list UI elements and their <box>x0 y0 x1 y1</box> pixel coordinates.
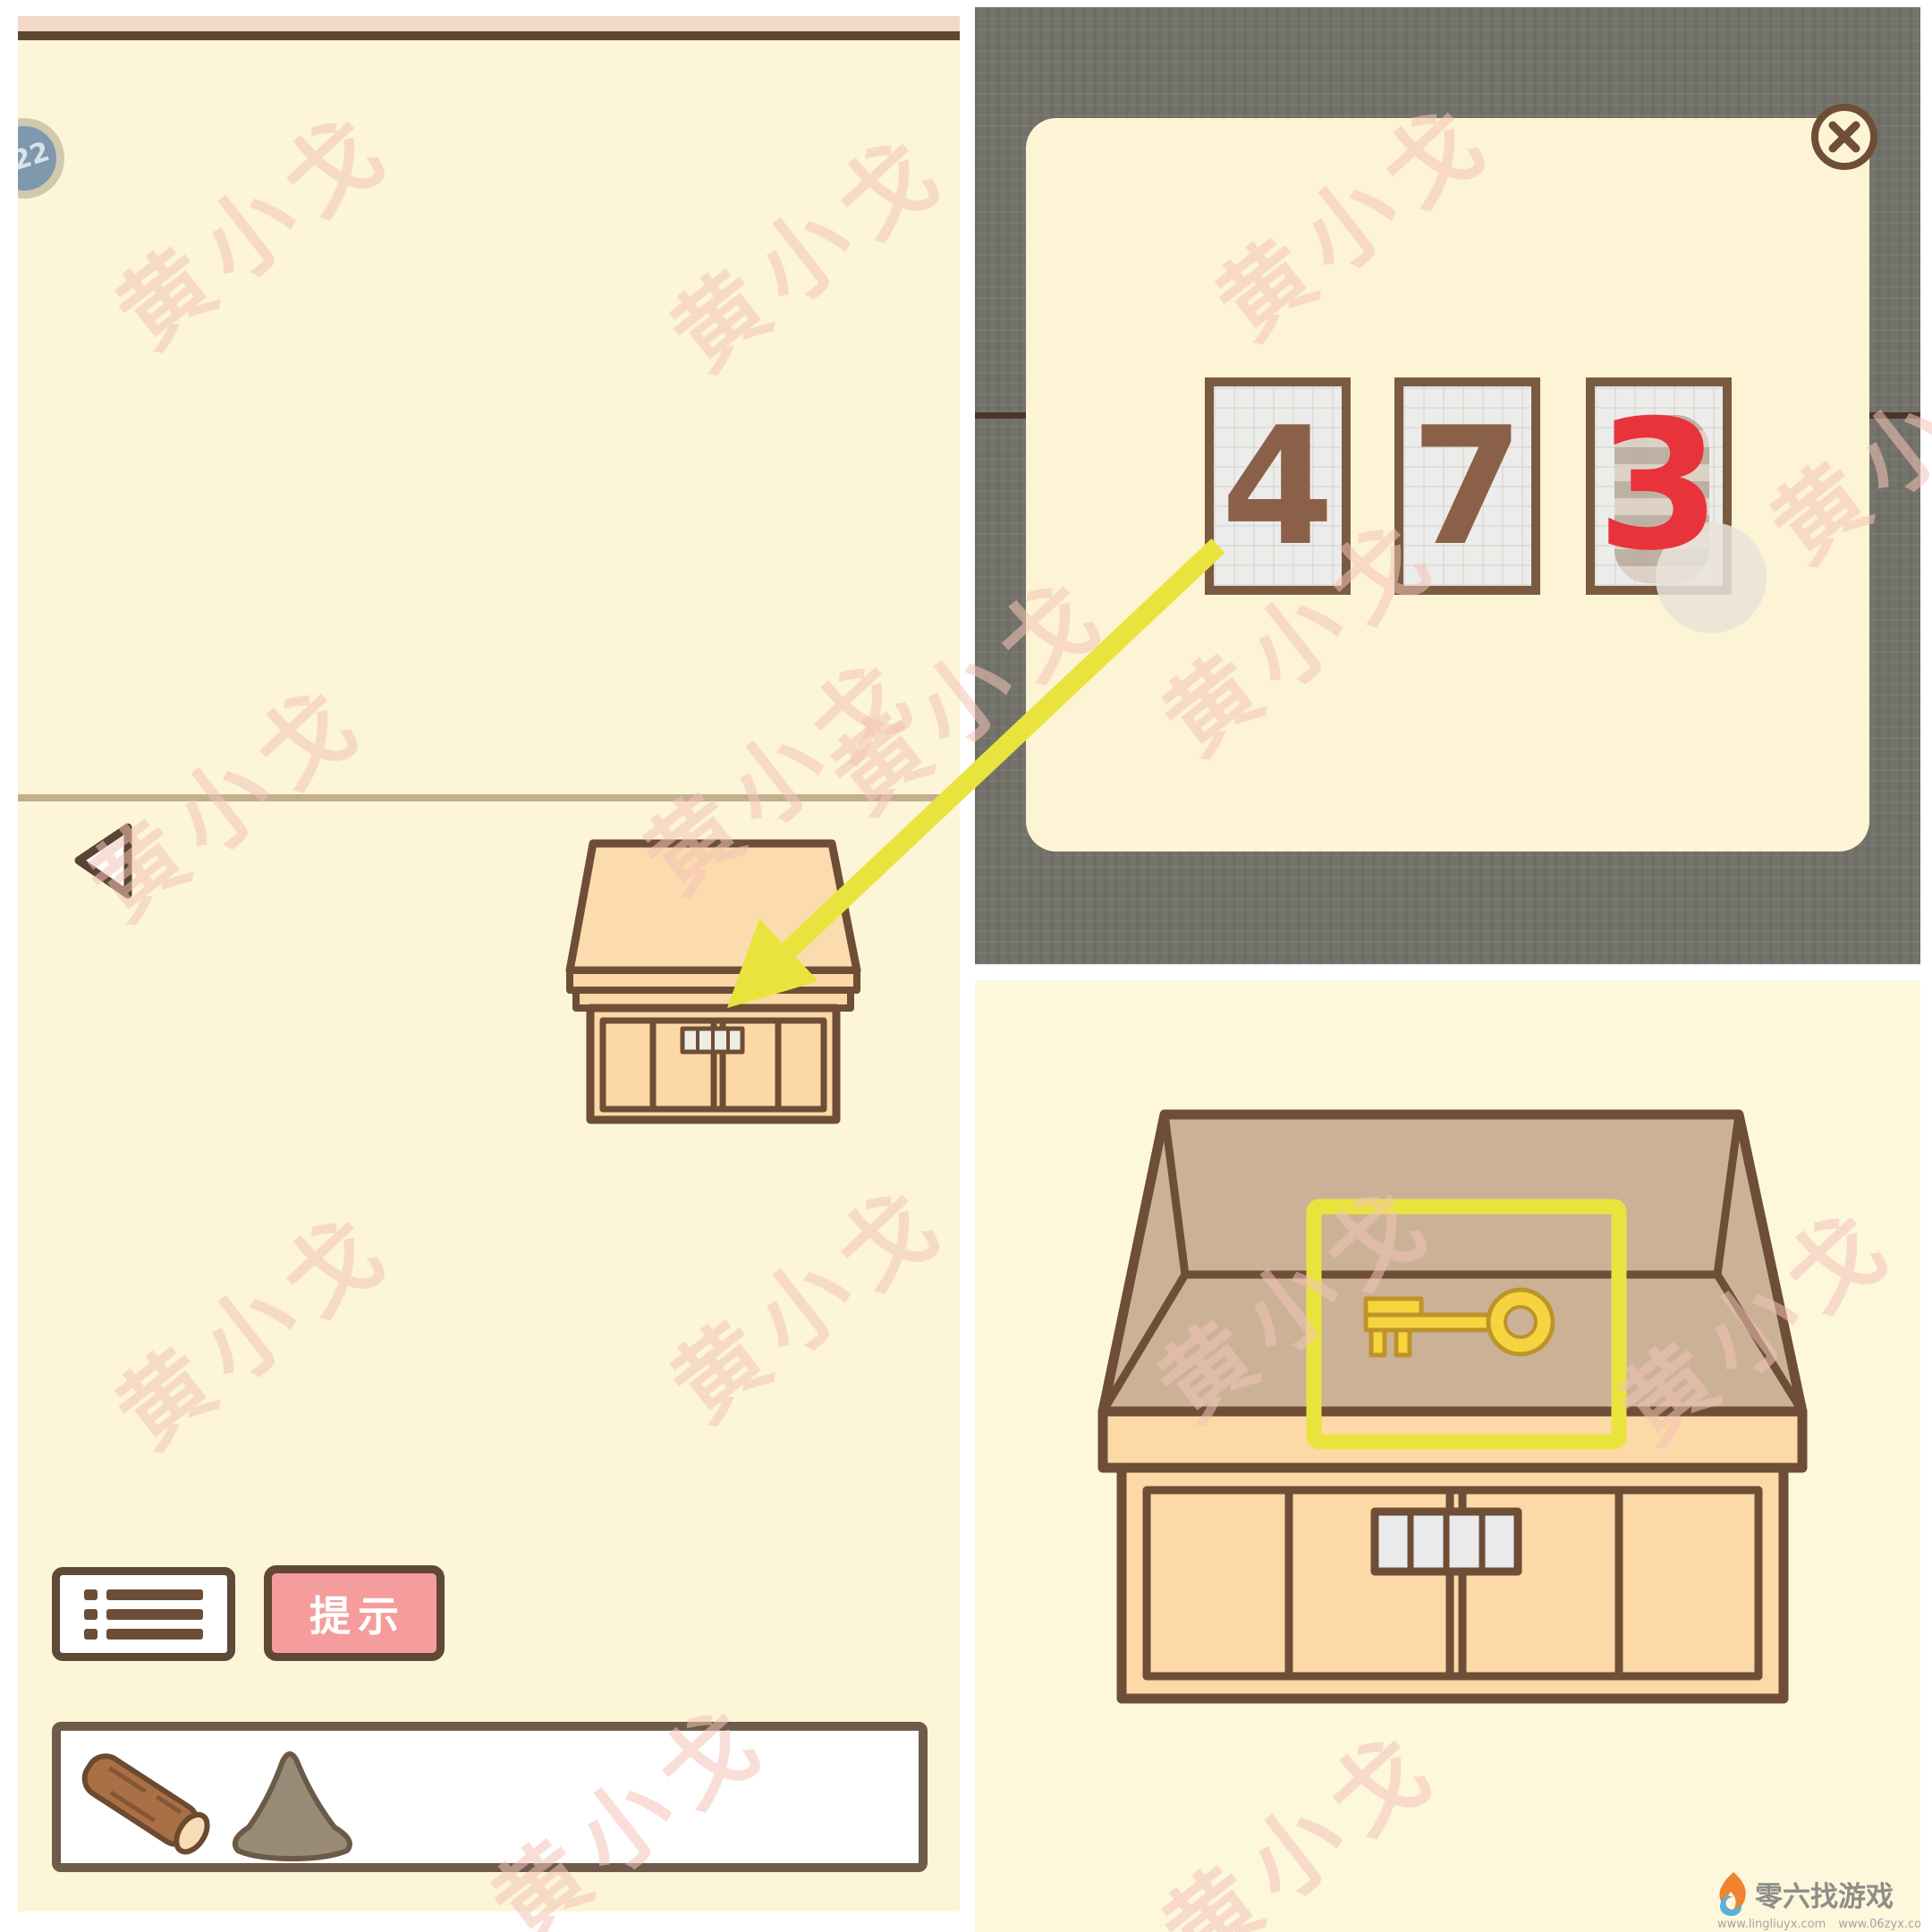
locked-cabinet[interactable] <box>563 835 872 1143</box>
code-popup-screenshot: 4 7 3 <box>975 7 1920 964</box>
open-box[interactable] <box>975 980 1920 1932</box>
level-badge[interactable]: 22 <box>18 118 64 199</box>
back-arrow-icon <box>79 827 128 894</box>
site-name: 零六找游戏 <box>1755 1874 1894 1914</box>
annotated-code-digit-3: 3 <box>1595 386 1723 586</box>
code-digit-1: 4 <box>1221 405 1335 568</box>
code-popup: 4 7 3 <box>1026 118 1869 852</box>
inventory-item-wood-log[interactable] <box>70 1747 231 1863</box>
flame-logo-icon <box>1714 1871 1750 1916</box>
ceiling-line <box>18 31 960 40</box>
ceiling-strip <box>18 16 960 31</box>
back-button[interactable] <box>54 808 161 915</box>
code-card-2[interactable]: 7 <box>1394 377 1540 595</box>
inventory-menu-button[interactable] <box>52 1567 235 1661</box>
site-url-2: www.06zyx.com <box>1838 1918 1920 1931</box>
open-box-screenshot: 零六找游戏 www.lingliuyx.com www.06zyx.com <box>975 980 1920 1932</box>
close-icon <box>1818 111 1870 163</box>
code-card-1[interactable]: 4 <box>1205 377 1351 595</box>
hint-button[interactable]: 提示 <box>264 1565 445 1661</box>
site-logo: 零六找游戏 www.lingliuyx.com www.06zyx.com <box>1714 1871 1916 1928</box>
inventory-bar <box>52 1722 928 1872</box>
walkthrough-composite: 22 <box>0 0 1932 1932</box>
code-card-3[interactable]: 3 <box>1586 377 1732 595</box>
level-badge-label: 22 <box>18 135 54 181</box>
close-button[interactable] <box>1811 104 1877 170</box>
code-digit-2: 7 <box>1411 405 1524 568</box>
wall-floor-line <box>18 794 960 801</box>
game-scene-panel: 22 <box>18 16 960 1911</box>
inventory-item-dust-pile[interactable] <box>222 1738 365 1863</box>
site-url-1: www.lingliuyx.com <box>1717 1918 1826 1931</box>
list-icon <box>84 1589 203 1640</box>
